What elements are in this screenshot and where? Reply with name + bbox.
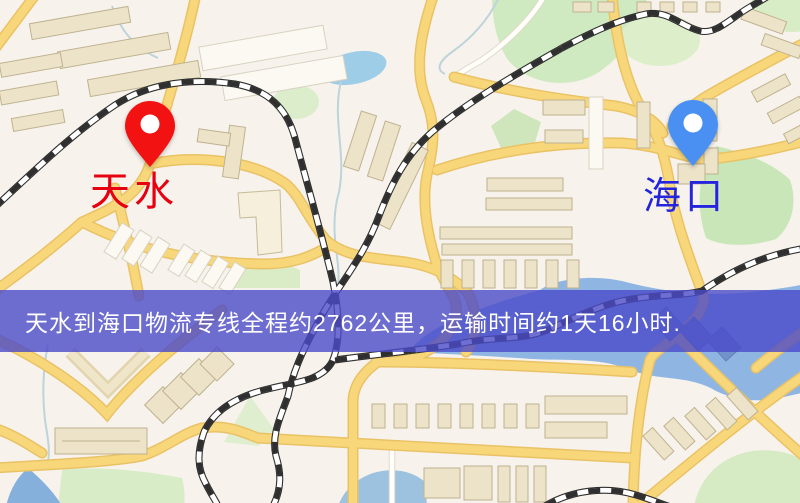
- route-info-banner: 天水到海口物流专线全程约2762公里，运输时间约1天16小时.: [0, 290, 800, 352]
- haikou-label: 海口: [643, 178, 727, 216]
- tianshui-label: 天水: [90, 172, 178, 212]
- pin-shape: [125, 101, 175, 167]
- map-graphics: [0, 0, 800, 503]
- map-canvas[interactable]: 天水 海口 天水到海口物流专线全程约2762公里，运输时间约1天16小时.: [0, 0, 800, 503]
- tianshui-pin-icon[interactable]: [124, 100, 176, 168]
- haikou-pin-icon[interactable]: [667, 99, 719, 167]
- pin-hole: [141, 115, 160, 134]
- route-info-text: 天水到海口物流专线全程约2762公里，运输时间约1天16小时.: [25, 290, 681, 352]
- pin-hole: [684, 114, 703, 133]
- pin-shape: [668, 100, 718, 166]
